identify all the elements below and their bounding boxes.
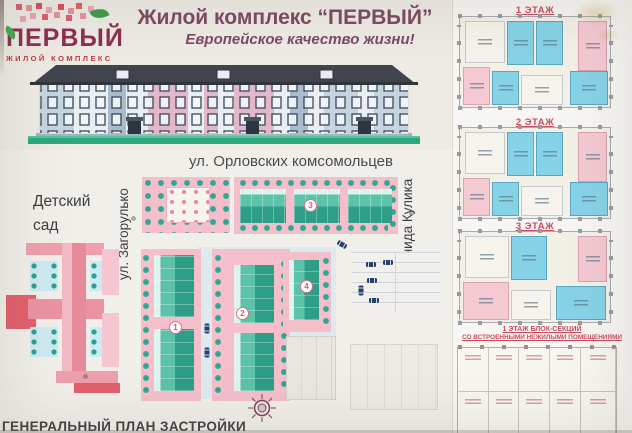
residential-block-3: 3 [234, 177, 398, 234]
page-subtitle: Европейское качество жизни! [150, 31, 450, 48]
kindergarten-yard [30, 261, 58, 291]
photo-smudge [83, 374, 88, 379]
room [492, 71, 519, 105]
wall-pilasters [457, 240, 461, 314]
apartment-building [240, 189, 286, 223]
tree-row [321, 256, 331, 328]
parking-lot [352, 252, 440, 312]
car-icon [366, 262, 376, 267]
leaf-icon [89, 5, 109, 22]
residential-block-1: 1 [141, 249, 201, 401]
room [521, 186, 563, 216]
room [489, 348, 520, 392]
room [570, 182, 608, 216]
unbuilt-building-outline [350, 344, 438, 410]
room [463, 178, 490, 216]
room [570, 71, 608, 105]
room [578, 132, 607, 182]
kindergarten-yard [30, 327, 58, 357]
ground-floor-note-line2: СО ВСТРОЕННЫМИ НЕЖИЛЫМИ ПОМЕЩЕНИЯМИ [453, 334, 631, 341]
car-icon [359, 286, 364, 296]
kindergarten-wing [102, 313, 119, 367]
wall-pilasters [609, 240, 613, 314]
room [521, 75, 563, 105]
room [581, 392, 616, 433]
room [463, 67, 490, 105]
logo: ПЕРВЫЙ ЖИЛОЙ КОМПЛЕКС [6, 2, 120, 63]
tree-row [141, 253, 151, 397]
room [511, 236, 547, 280]
residential-block-4: 4 [283, 252, 331, 332]
wall-pilasters [609, 136, 613, 210]
photo-smudge [131, 216, 136, 221]
photo-smudge [409, 211, 414, 216]
room [489, 392, 520, 433]
room [507, 132, 534, 176]
room [519, 392, 550, 433]
building-number-badge: 4 [300, 280, 313, 293]
compass-rose-icon [246, 392, 278, 424]
room [581, 348, 616, 392]
building-number-badge: 3 [304, 199, 317, 212]
car-icon [205, 348, 210, 358]
apartment-building [348, 189, 392, 223]
commercial-floor-plan [457, 347, 617, 433]
room [519, 348, 550, 392]
car-icon [367, 278, 377, 283]
room [465, 236, 509, 278]
logo-mosaic-icon [16, 4, 22, 10]
unbuilt-building-outline [286, 336, 336, 400]
kindergarten-wing [102, 249, 119, 295]
apartment-building [154, 329, 194, 391]
kindergarten-wing [62, 243, 86, 383]
photo-stain [598, 28, 620, 43]
room [463, 282, 509, 320]
apartment-building [294, 189, 340, 223]
car-icon [383, 260, 393, 265]
car-icon [205, 324, 210, 334]
apartment-building [234, 333, 274, 391]
room [492, 182, 519, 216]
ground-floor-note-line1: 1 ЭТАЖ БЛОК-СЕКЦИЙ [453, 326, 631, 333]
photo-stain [572, 0, 620, 26]
floor-plan-2 [459, 127, 611, 219]
car-icon [369, 298, 379, 303]
room [465, 21, 505, 63]
page-title: Жилой комплекс “ПЕРВЫЙ” [118, 6, 452, 30]
billboard-photo: ПЕРВЫЙ ЖИЛОЙ КОМПЛЕКС Жилой комплекс “ПЕ… [0, 0, 632, 433]
building-elevation-drawing [28, 60, 420, 150]
tree-row [213, 253, 223, 397]
photo-edge-shadow [0, 0, 4, 78]
room [550, 348, 581, 392]
logo-pixel-pattern [10, 2, 120, 26]
room [465, 132, 505, 174]
building-number-badge: 1 [169, 321, 182, 334]
floor-plan-1 [459, 16, 611, 108]
room [536, 21, 563, 65]
kindergarten-building [6, 243, 120, 405]
floor-plans-panel: 1 ЭТАЖ 2 ЭТАЖ 3 ЭТАЖ [452, 0, 632, 433]
wall-pilasters [457, 136, 461, 210]
room [511, 290, 551, 320]
room [458, 348, 489, 392]
building-number-badge: 2 [236, 307, 249, 320]
tree-row [238, 223, 388, 233]
room [536, 132, 563, 176]
room [507, 21, 534, 65]
residential-block-2: 2 [212, 249, 290, 401]
kindergarten-label: Детский сад [33, 190, 105, 238]
park-block [142, 177, 230, 233]
room [578, 236, 607, 282]
apartment-building [154, 255, 194, 317]
room [556, 286, 606, 320]
street-label-top: ул. Орловских комсомольцев [148, 153, 434, 170]
room [550, 392, 581, 433]
tree-row [238, 178, 392, 188]
playground [166, 187, 210, 223]
wall-pilasters [457, 25, 461, 99]
kindergarten-wing [74, 383, 120, 393]
room [458, 392, 489, 433]
floor-plan-3 [459, 231, 611, 323]
logo-name: ПЕРВЫЙ [6, 26, 120, 51]
